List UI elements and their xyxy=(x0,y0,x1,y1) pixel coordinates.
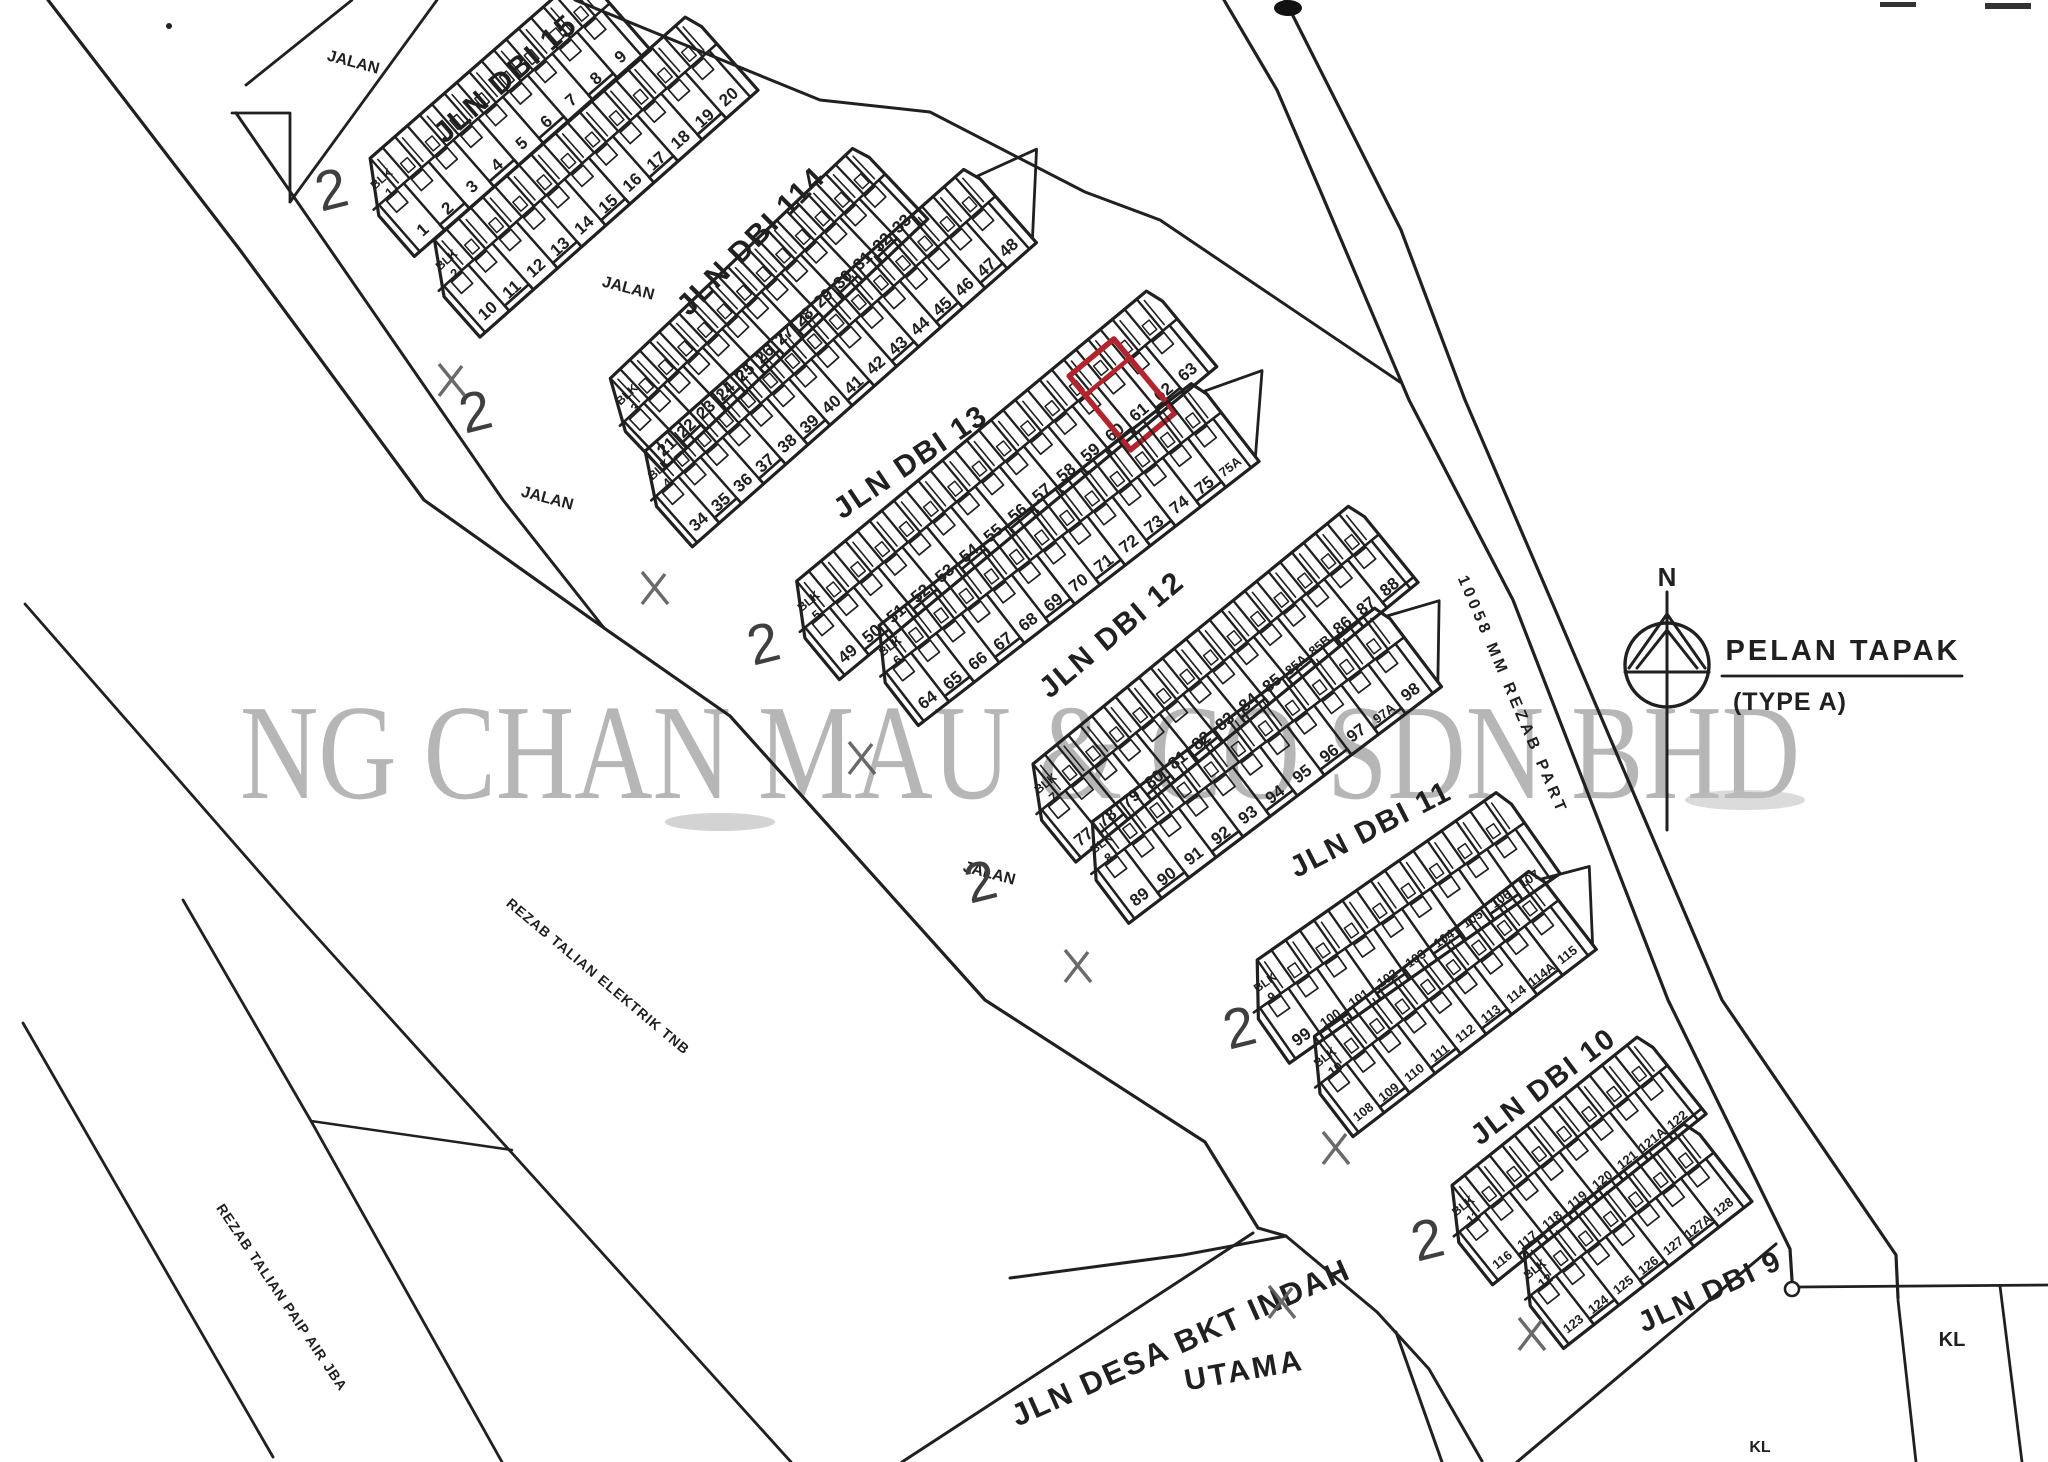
svg-text:KL: KL xyxy=(1939,1329,1966,1351)
svg-text:(TYPE A): (TYPE A) xyxy=(1733,688,1847,716)
svg-text:PELAN TAPAK: PELAN TAPAK xyxy=(1726,635,1961,667)
svg-text:N: N xyxy=(1658,562,1677,592)
svg-text:KL: KL xyxy=(1749,1439,1771,1456)
